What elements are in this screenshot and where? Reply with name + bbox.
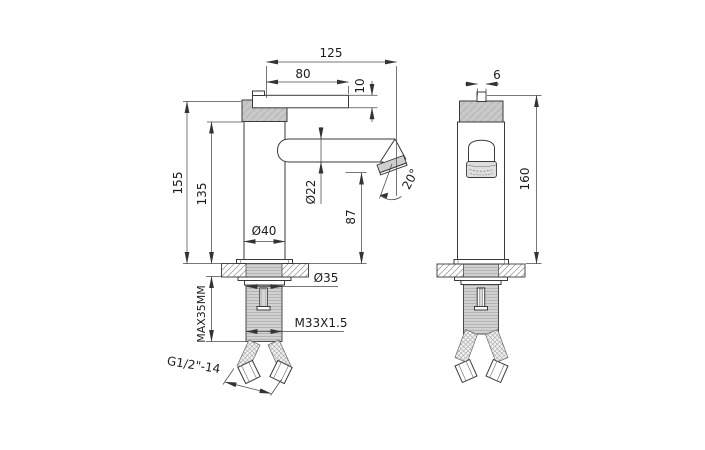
mounting-stud-front bbox=[479, 289, 483, 308]
dim-hose-thread: G1/2"-14 bbox=[166, 354, 221, 376]
dim-lever-thickness: 10 bbox=[353, 78, 367, 93]
spout-arm bbox=[278, 139, 396, 162]
dim-body-diameter: Ø40 bbox=[252, 224, 277, 238]
handle-lever bbox=[253, 95, 349, 108]
dim-spout-diameter: Ø22 bbox=[304, 180, 318, 205]
dim-lever-length: 80 bbox=[295, 67, 310, 81]
dim-spout-reach: 125 bbox=[320, 46, 343, 60]
stud-foot-front bbox=[475, 307, 488, 311]
dim-base-diameter: Ø35 bbox=[314, 271, 339, 285]
supply-hoses-front bbox=[455, 330, 508, 383]
side-view bbox=[222, 91, 408, 384]
faucet-body-front bbox=[458, 122, 505, 260]
deck-plate-shank-section bbox=[246, 264, 282, 278]
body-base-flange-side bbox=[237, 260, 293, 264]
handle-knob-front bbox=[460, 101, 504, 122]
base-washer-front bbox=[455, 277, 508, 281]
technical-drawing-page: 125 80 10 155 135 Ø40 Ø22 87 bbox=[0, 0, 705, 450]
hose-fitting-right-front bbox=[486, 360, 508, 383]
body-base-flange-front bbox=[454, 260, 509, 265]
lever-pivot-tab bbox=[253, 91, 265, 96]
base-locknut-side bbox=[245, 281, 285, 286]
faucet-technical-drawing: 125 80 10 155 135 Ø40 Ø22 87 bbox=[0, 0, 705, 450]
front-view bbox=[437, 92, 525, 382]
dim-spout-angle: 20° bbox=[399, 166, 421, 191]
stud-foot-side bbox=[257, 307, 270, 311]
lever-pin-front bbox=[477, 92, 486, 102]
dim-max-deck-thickness: MAX35MM bbox=[195, 285, 208, 343]
dim-mounting-thread: M33X1.5 bbox=[295, 316, 348, 330]
mounting-stud-side bbox=[262, 289, 266, 308]
dim-height-overall-front: 160 bbox=[518, 168, 532, 191]
dim-spout-outlet-height: 87 bbox=[344, 209, 358, 224]
faucet-body-side bbox=[244, 122, 285, 260]
base-washer-side bbox=[238, 277, 291, 281]
base-locknut-front bbox=[461, 281, 501, 285]
dim-body-height: 135 bbox=[195, 183, 209, 206]
dim-height-overall-side: 155 bbox=[171, 172, 185, 195]
hose-fitting-left-front bbox=[455, 360, 477, 383]
supply-hoses-side bbox=[237, 340, 292, 384]
dim-handle-pin-width: 6 bbox=[493, 68, 501, 82]
deck-plate-shank-section-front bbox=[464, 264, 499, 277]
aerator-cup bbox=[467, 162, 497, 178]
